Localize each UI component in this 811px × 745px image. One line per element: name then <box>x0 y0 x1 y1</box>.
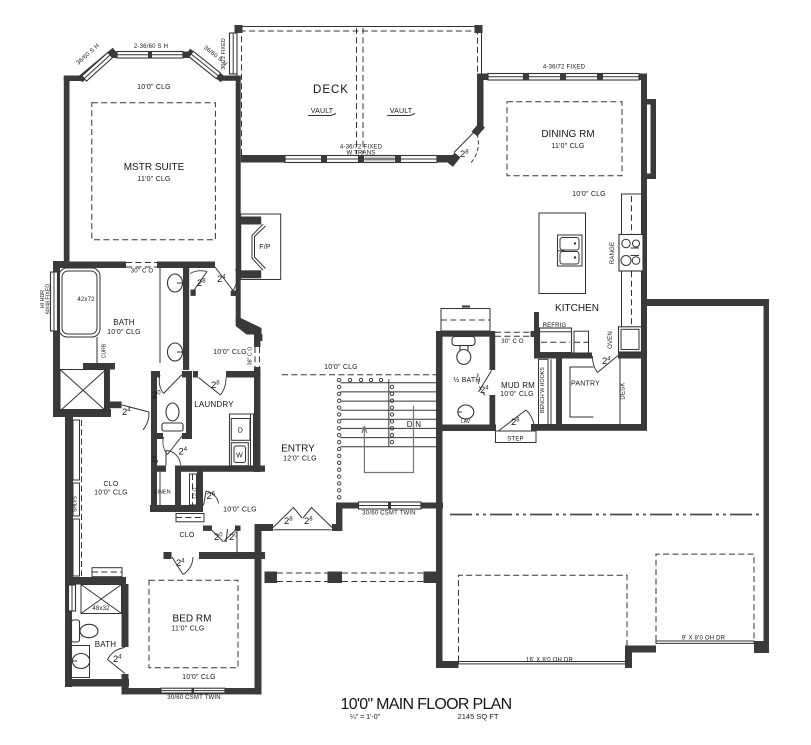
svg-text:½ BATH: ½ BATH <box>453 376 480 384</box>
svg-text:36/72 FIXED: 36/72 FIXED <box>221 38 227 70</box>
svg-text:MUD RM: MUD RM <box>501 381 535 390</box>
svg-text:10'0" CLG: 10'0" CLG <box>572 191 606 198</box>
svg-text:STEP: STEP <box>507 437 523 443</box>
svg-text:D N: D N <box>407 420 421 429</box>
svg-text:2-36/60 S H: 2-36/60 S H <box>134 44 168 50</box>
svg-text:10'0" CLG: 10'0" CLG <box>223 507 257 514</box>
svg-text:VAULT: VAULT <box>311 108 334 115</box>
svg-text:30" C O: 30" C O <box>131 269 154 275</box>
svg-text:30/60 CSMT TWIN: 30/60 CSMT TWIN <box>362 511 415 517</box>
svg-text:CLO: CLO <box>104 481 119 488</box>
svg-text:DINING RM: DINING RM <box>541 129 594 140</box>
svg-text:36" C O: 36" C O <box>248 347 254 366</box>
svg-text:BENCH W HOOKS: BENCH W HOOKS <box>540 367 546 413</box>
svg-text:CLO: CLO <box>193 488 199 499</box>
svg-text:ENTRY: ENTRY <box>281 444 315 455</box>
svg-text:60/48 FIXED: 60/48 FIXED <box>46 284 52 314</box>
svg-text:W TRANS: W TRANS <box>347 151 376 157</box>
svg-text:10'0" CLG: 10'0" CLG <box>94 490 128 497</box>
svg-text:2145 SQ FT: 2145 SQ FT <box>458 712 499 721</box>
svg-text:10'0" MAIN FLOOR PLAN: 10'0" MAIN FLOOR PLAN <box>341 696 512 713</box>
svg-text:42x72: 42x72 <box>77 297 95 303</box>
svg-text:30" C O: 30" C O <box>501 339 524 345</box>
svg-text:CLO: CLO <box>180 532 195 539</box>
svg-text:LINEN: LINEN <box>154 490 170 496</box>
svg-text:DESK: DESK <box>621 382 627 399</box>
svg-text:10'0" CLG: 10'0" CLG <box>324 364 358 371</box>
svg-text:DECK: DECK <box>313 84 349 96</box>
svg-text:D: D <box>238 428 243 435</box>
svg-text:MSTR SUITE: MSTR SUITE <box>124 162 185 173</box>
svg-text:LAUNDRY: LAUNDRY <box>194 400 234 409</box>
svg-text:16' X 8'0 OH DR: 16' X 8'0 OH DR <box>526 658 573 664</box>
svg-text:48x32: 48x32 <box>92 606 110 612</box>
svg-text:F/P: F/P <box>259 244 271 251</box>
svg-text:10'0" CLG: 10'0" CLG <box>137 84 171 91</box>
svg-text:KITCHEN: KITCHEN <box>555 303 599 314</box>
svg-text:¼" = 1'-0": ¼" = 1'-0" <box>350 714 381 721</box>
svg-text:11'0" CLG: 11'0" CLG <box>137 176 170 183</box>
svg-text:CURB: CURB <box>102 343 108 358</box>
svg-text:10'0" CLG: 10'0" CLG <box>107 329 141 336</box>
svg-text:10'0" CLG: 10'0" CLG <box>500 391 534 398</box>
svg-text:LAV: LAV <box>461 419 471 425</box>
svg-text:10'0" CLG: 10'0" CLG <box>213 349 247 356</box>
svg-text:10'0" CLG: 10'0" CLG <box>182 674 216 681</box>
svg-text:VAULT: VAULT <box>390 108 413 115</box>
svg-text:SHLVS: SHLVS <box>73 495 79 512</box>
svg-text:BED RM: BED RM <box>173 614 212 625</box>
svg-text:OVEN: OVEN <box>608 331 614 349</box>
svg-text:11'0" CLG: 11'0" CLG <box>551 143 584 150</box>
svg-text:30/60 CSMT TWIN: 30/60 CSMT TWIN <box>167 695 220 701</box>
svg-text:W: W <box>236 453 243 460</box>
svg-text:9' X 8'0 OH DR: 9' X 8'0 OH DR <box>682 636 726 642</box>
svg-text:12'0" CLG: 12'0" CLG <box>283 456 317 463</box>
svg-text:PANTRY: PANTRY <box>571 381 600 388</box>
svg-text:BATH: BATH <box>113 318 135 327</box>
svg-text:11'0" CLG: 11'0" CLG <box>171 626 204 633</box>
svg-text:BATH: BATH <box>95 640 117 649</box>
svg-text:4-36/72 FIXED: 4-36/72 FIXED <box>543 65 586 71</box>
svg-text:REFRIG: REFRIG <box>543 323 567 329</box>
svg-text:RANGE: RANGE <box>610 242 616 264</box>
